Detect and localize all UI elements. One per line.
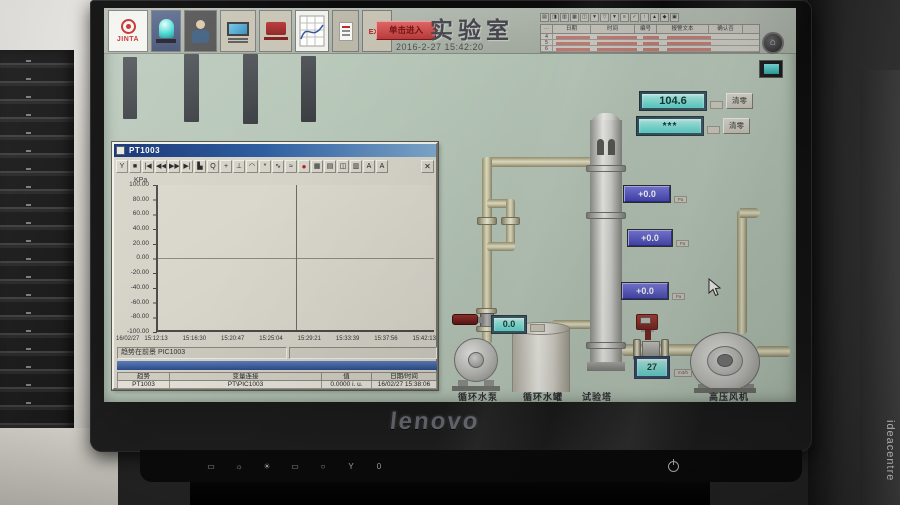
tower-window: [608, 139, 615, 155]
big-display-1-unit: [710, 101, 723, 109]
pipe-segment: [756, 346, 790, 357]
trend-toolbar-icon[interactable]: Q: [207, 160, 219, 173]
valve-handle[interactable]: [452, 314, 478, 325]
x-tick-label: 15:29:21: [298, 336, 321, 342]
clear-button-1[interactable]: 清零: [726, 93, 753, 109]
jinta-logo: JINTA: [108, 10, 148, 52]
tower-body: [590, 120, 622, 370]
x-axis: 16/02/27 15:12:1315:16:3015:20:4715:25:0…: [116, 336, 436, 342]
monitor: JINTA: [90, 0, 812, 452]
alarm-toolbar-icon[interactable]: ▼: [590, 13, 599, 22]
trend-toolbar-icon[interactable]: ▥: [350, 160, 362, 173]
fan-flow-display: 27: [635, 357, 669, 378]
big-display-2-unit: [707, 126, 720, 134]
pressure-unit-2: Pa: [676, 240, 689, 247]
alarm-toolbar: ▤◨▥▦◫▼▽▼≡✓↑▲◆▣: [540, 13, 679, 22]
legend-column-header: 值: [321, 372, 371, 381]
legend-column-header: 变量连接: [169, 372, 321, 381]
ideacentre-label: ideacentre: [876, 420, 896, 505]
clear-button-2[interactable]: 清零: [723, 118, 750, 134]
flowmeter-stem: [645, 330, 651, 340]
close-icon[interactable]: ✕: [421, 160, 434, 173]
alarm-column-header: 时间: [591, 25, 635, 33]
y-tick-label: 20.00: [133, 240, 149, 248]
x-tick-label: 15:33:39: [336, 336, 359, 342]
y-tick-label: -80.00: [131, 313, 149, 321]
x-tick-label: 15:12:13: [144, 336, 167, 342]
trend-titlebar[interactable]: PT1003: [114, 144, 436, 157]
monitor-control-button[interactable]: ☼: [234, 462, 244, 471]
alarm-column-header: 编号: [635, 25, 657, 33]
alarm-toolbar-icon[interactable]: ≡: [620, 13, 629, 22]
trend-toolbar-icon[interactable]: ≈: [285, 160, 297, 173]
mouse-cursor: [708, 278, 721, 302]
alarm-column-header: 确认否: [709, 25, 743, 33]
home-indicator-icon[interactable]: ⌂: [762, 32, 784, 54]
tower-label: 试验塔: [572, 390, 622, 402]
pipe-segment: [482, 157, 592, 167]
monitor-buttons: ▭☼☀▭○Y0: [206, 462, 384, 471]
x-axis-date: 16/02/27: [116, 336, 139, 342]
datetime-display: 2016-2-27 15:42:20: [396, 42, 484, 52]
alarm-table-header: … 日期时间编号报警文本确认否: [541, 25, 759, 34]
y-tick-label: -20.00: [131, 269, 149, 277]
x-tick-label: 15:42:13: [413, 336, 436, 342]
enter-button[interactable]: 单击进入: [376, 21, 436, 40]
legend-value: 0.0000 i. u.: [321, 381, 371, 389]
trend-chart: KPa 100.0080.0060.0040.0020.000.00-20.00…: [114, 176, 436, 345]
trend-window-title: PT1003: [129, 146, 160, 155]
y-tick-label: 40.00: [133, 225, 149, 233]
x-tick-label: 15:25:04: [259, 336, 282, 342]
y-tick-label: 80.00: [133, 196, 149, 204]
pump-label: 循环水泵: [450, 390, 506, 402]
fan-flow-unit: m3/h: [674, 369, 692, 377]
lenovo-logo: lenovo: [389, 408, 481, 436]
y-tick-label: 0.00: [136, 254, 149, 262]
equipment-rack: [0, 50, 74, 434]
trend-toolbar-icon[interactable]: *: [259, 160, 271, 173]
trend-splitter[interactable]: [117, 361, 437, 370]
trend-toolbar-icon[interactable]: ●: [298, 160, 310, 173]
alarm-table: … 日期时间编号报警文本确认否 4 5 6: [540, 24, 760, 53]
trend-toolbar-icon[interactable]: A: [363, 160, 375, 173]
alarm-toolbar-icon[interactable]: ↑: [640, 13, 649, 22]
trend-toolbar-icon[interactable]: Y: [116, 160, 128, 173]
trend-window: PT1003 Y■|◀◀◀▶▶▶|▙Q+⊥◠*∿≈●▦▤◫▥AA ✕ KPa 1…: [112, 142, 438, 390]
alarm-row[interactable]: 6: [541, 46, 759, 52]
alarm-toolbar-icon[interactable]: ▦: [570, 13, 579, 22]
tower-flange: [586, 342, 626, 349]
alarm-column-header: 报警文本: [657, 25, 709, 33]
pressure-display-2: +0.0: [628, 230, 672, 246]
monitor-control-button[interactable]: Y: [346, 462, 356, 471]
level-bar: [243, 54, 258, 124]
plot-area[interactable]: [156, 185, 434, 332]
tower-flange: [586, 212, 626, 219]
pipe-segment: [487, 242, 515, 251]
big-display-2: ***: [637, 117, 703, 135]
person-body: [192, 30, 209, 43]
trend-toolbar-icon[interactable]: ◫: [337, 160, 349, 173]
monitor-control-button[interactable]: ☀: [262, 462, 272, 471]
flowmeter-display: [640, 317, 651, 324]
big-display-1: 104.6: [640, 92, 706, 110]
alarm-column-header: 日期: [553, 25, 591, 33]
power-button[interactable]: [668, 461, 679, 472]
alarm-toolbar-icon[interactable]: ▼: [610, 13, 619, 22]
y-axis-ticks: 100.0080.0060.0040.0020.000.00-20.00-40.…: [114, 181, 152, 336]
alarm-toolbar-icon[interactable]: ▥: [560, 13, 569, 22]
trend-toolbar-icon[interactable]: ∿: [272, 160, 284, 173]
alarm-toolbar-icon[interactable]: ◨: [550, 13, 559, 22]
trend-statusbar: 趋势在前景 PIC1003: [117, 347, 437, 359]
alarm-row-selector-header: …: [541, 25, 553, 33]
fan-hub: [717, 354, 733, 367]
pressure-unit-1: Pa: [674, 196, 687, 203]
lamp-icon: [159, 19, 174, 38]
chart-cursor-line[interactable]: [296, 185, 297, 330]
trend-toolbar: Y■|◀◀◀▶▶▶|▙Q+⊥◠*∿≈●▦▤◫▥AA ✕: [114, 157, 436, 176]
tank-label: 循环水罐: [514, 390, 572, 402]
legend-column-header: 趋势: [117, 372, 169, 381]
tower-flange: [586, 165, 626, 172]
trend-chart-button[interactable]: [295, 10, 329, 52]
x-tick-label: 15:16:30: [183, 336, 206, 342]
fan-label: 高压风机: [700, 390, 758, 402]
printer-button[interactable]: [259, 10, 292, 52]
monitor-control-button[interactable]: ▭: [206, 462, 216, 471]
monitor-control-button[interactable]: ○: [318, 462, 328, 471]
alarm-row-number: 5: [541, 40, 553, 45]
trend-toolbar-icon[interactable]: ▶▶: [168, 160, 180, 173]
report-button[interactable]: [332, 10, 359, 52]
scada-screen: JINTA: [104, 8, 796, 402]
y-tick-label: -60.00: [131, 299, 149, 307]
trend-toolbar-icon[interactable]: A: [376, 160, 388, 173]
tower-window: [597, 139, 604, 155]
trend-toolbar-icon[interactable]: ◀◀: [155, 160, 167, 173]
level-bar: [184, 54, 199, 122]
y-tick-label: 60.00: [133, 210, 149, 218]
trend-toolbar-icon[interactable]: ▙: [194, 160, 206, 173]
trend-toolbar-icon[interactable]: ◠: [246, 160, 258, 173]
pressure-unit-3: Pa: [672, 293, 685, 300]
tank-body: [512, 328, 570, 392]
monitor-chin: ▭☼☀▭○Y0: [140, 450, 802, 482]
monitor-control-button[interactable]: ▭: [290, 462, 300, 471]
main-toolbar: JINTA: [104, 8, 796, 54]
pump-hub: [468, 352, 484, 368]
trend-toolbar-icon[interactable]: ■: [129, 160, 141, 173]
valve-flow-display: 0.0: [492, 316, 526, 333]
legend-variable: PT\PIC1003: [169, 381, 321, 389]
report-icon: [339, 22, 353, 41]
stand-shadow: [190, 482, 710, 505]
printer-foot: [264, 37, 288, 40]
alarm-lamp-button[interactable]: [151, 10, 181, 52]
trend-status-text: 趋势在前景 PIC1003: [117, 347, 287, 359]
trend-toolbar-icon[interactable]: ▶|: [181, 160, 193, 173]
legend-trend-name: PT1003: [117, 381, 169, 389]
pressure-display-3: +0.0: [622, 283, 668, 299]
computer-base: [228, 38, 248, 40]
trend-legend-table: 趋势变量连接值日期/时间 PT1003 PT\PIC1003 0.0000 i.…: [117, 372, 437, 389]
trend-status-spare: [289, 347, 437, 359]
jinta-logo-icon: [121, 19, 136, 34]
jinta-logo-text: JINTA: [117, 36, 139, 43]
system-screen-button[interactable]: [220, 10, 256, 52]
level-bar: [123, 57, 137, 119]
pressure-display-1: +0.0: [624, 186, 670, 202]
y-tick-label: 100.00: [129, 181, 149, 189]
alarm-toolbar-icon[interactable]: ▤: [540, 13, 549, 22]
flowmeter-body: [642, 341, 660, 357]
y-tick-label: -100.00: [127, 328, 149, 336]
trend-window-icon: [116, 146, 125, 155]
level-bar: [301, 56, 316, 122]
alarm-toolbar-icon[interactable]: ◆: [660, 13, 669, 22]
legend-column-header: 日期/时间: [371, 372, 437, 381]
printer-icon: [266, 22, 286, 35]
pipe-flange: [477, 217, 497, 225]
pipe-flange: [501, 217, 520, 225]
pipe-segment: [740, 208, 760, 218]
trend-chart-icon: [299, 15, 325, 47]
lamp-base: [156, 39, 176, 43]
trend-toolbar-icon[interactable]: ▦: [311, 160, 323, 173]
valve-flow-unit: [530, 324, 545, 332]
tower-base: [587, 362, 625, 371]
trend-toolbar-icon[interactable]: +: [220, 160, 232, 173]
alarm-panel: ▤◨▥▦◫▼▽▼≡✓↑▲◆▣ … 日期时间编号报警文本确认否 4 5: [540, 11, 760, 53]
trend-toolbar-icon[interactable]: |◀: [142, 160, 154, 173]
alarm-toolbar-icon[interactable]: ▽: [600, 13, 609, 22]
x-tick-label: 15:37:56: [374, 336, 397, 342]
legend-datetime: 16/02/27 15:38:06: [371, 381, 437, 389]
legend-row[interactable]: PT1003 PT\PIC1003 0.0000 i. u. 16/02/27 …: [117, 381, 437, 389]
trend-toolbar-icon[interactable]: ▤: [324, 160, 336, 173]
alarm-row-number: 6: [541, 46, 553, 51]
computer-icon: [227, 22, 249, 36]
pipe-segment: [737, 210, 747, 334]
monitor-control-button[interactable]: 0: [374, 462, 384, 471]
y-tick-label: -40.00: [131, 284, 149, 292]
person-icon: [196, 20, 205, 29]
operator-login-button[interactable]: [184, 10, 217, 52]
alarm-toolbar-icon[interactable]: ✓: [630, 13, 639, 22]
alarm-row-number: 4: [541, 34, 553, 39]
alarm-toolbar-icon[interactable]: ▲: [650, 13, 659, 22]
alarm-toolbar-icon[interactable]: ▣: [670, 13, 679, 22]
screen-switch-button[interactable]: [759, 60, 783, 78]
x-tick-label: 15:20:47: [221, 336, 244, 342]
trend-toolbar-icon[interactable]: ⊥: [233, 160, 245, 173]
alarm-toolbar-icon[interactable]: ◫: [580, 13, 589, 22]
